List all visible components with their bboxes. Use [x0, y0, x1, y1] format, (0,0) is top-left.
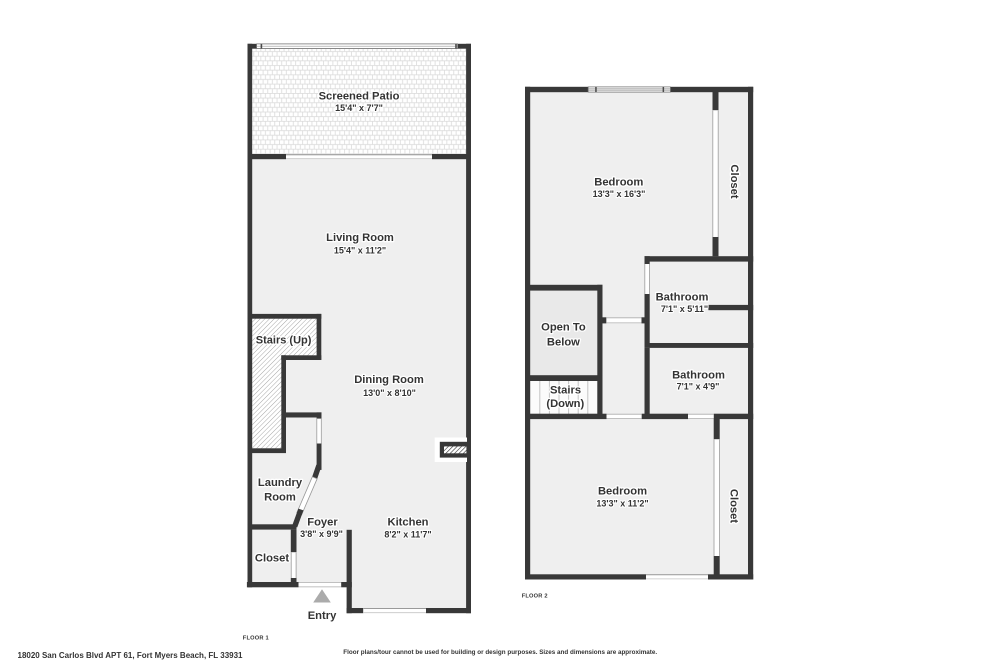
svg-text:Living Room: Living Room [326, 232, 394, 244]
svg-text:Stairs (Up): Stairs (Up) [256, 334, 312, 346]
svg-text:Laundry: Laundry [258, 477, 303, 489]
svg-text:Kitchen: Kitchen [387, 517, 428, 529]
svg-text:7'1" x 4'9": 7'1" x 4'9" [677, 382, 720, 392]
svg-text:Room: Room [264, 492, 296, 504]
svg-text:13'3" x 16'3": 13'3" x 16'3" [593, 189, 646, 199]
svg-text:Foyer: Foyer [307, 517, 338, 529]
svg-text:15'4" x 11'2": 15'4" x 11'2" [334, 245, 386, 255]
svg-text:15'4" x 7'7": 15'4" x 7'7" [335, 103, 383, 113]
svg-text:Closet: Closet [728, 489, 740, 523]
svg-text:Bedroom: Bedroom [594, 176, 643, 188]
svg-text:Closet: Closet [728, 164, 740, 198]
svg-text:Stairs: Stairs [550, 384, 581, 396]
svg-text:Bathroom: Bathroom [672, 370, 725, 382]
svg-text:13'0" x 8'10": 13'0" x 8'10" [363, 388, 416, 398]
svg-text:Screened Patio: Screened Patio [319, 91, 400, 103]
svg-text:(Down): (Down) [546, 398, 584, 410]
svg-text:Below: Below [547, 337, 580, 349]
svg-text:Dining Room: Dining Room [354, 374, 424, 386]
svg-text:FLOOR 2: FLOOR 2 [522, 594, 548, 600]
svg-text:Open To: Open To [541, 321, 586, 333]
svg-text:FLOOR 1: FLOOR 1 [243, 635, 269, 641]
svg-text:Floor plans/tour cannot be use: Floor plans/tour cannot be used for buil… [343, 649, 657, 656]
svg-text:Bathroom: Bathroom [656, 292, 709, 304]
svg-text:8'2" x 11'7": 8'2" x 11'7" [384, 529, 431, 539]
svg-text:Bedroom: Bedroom [598, 486, 647, 498]
svg-text:7'1" x 5'11": 7'1" x 5'11" [661, 304, 708, 314]
svg-text:Closet: Closet [255, 553, 289, 565]
svg-text:3'8" x 9'9": 3'8" x 9'9" [300, 529, 343, 539]
svg-text:Entry: Entry [308, 610, 337, 622]
svg-text:13'3" x 11'2": 13'3" x 11'2" [596, 498, 648, 508]
svg-text:18020 San Carlos Blvd APT 61,: 18020 San Carlos Blvd APT 61, Fort Myers… [18, 651, 244, 660]
